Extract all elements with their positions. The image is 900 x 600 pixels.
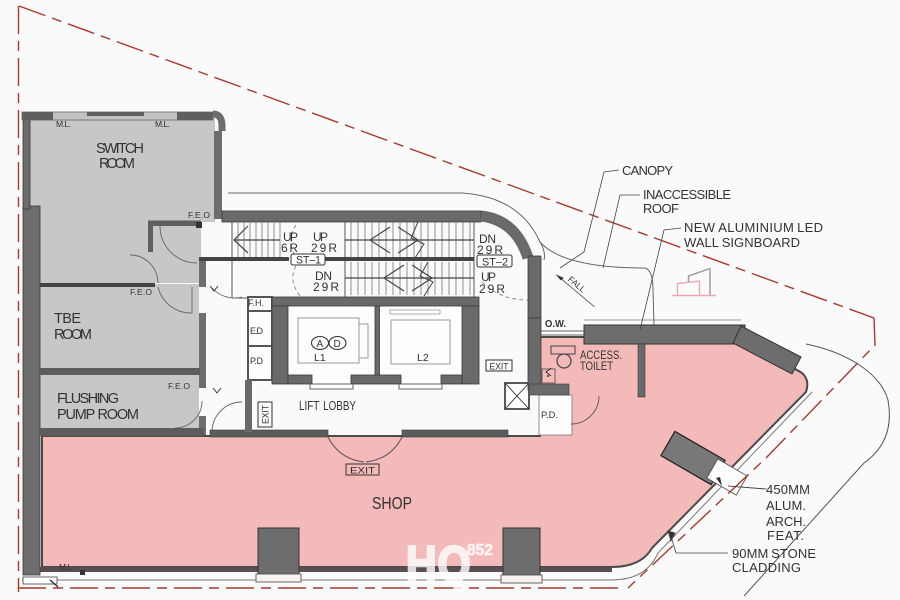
svg-text:F.E.O: F.E.O [188, 210, 210, 220]
svg-text:O.W.: O.W. [545, 318, 566, 330]
svg-text:L1: L1 [314, 352, 326, 364]
svg-text:SHOP: SHOP [372, 493, 412, 513]
svg-text:NEW ALUMINIUM LED: NEW ALUMINIUM LED [684, 220, 823, 235]
svg-text:ST–1: ST–1 [296, 255, 321, 267]
svg-text:P.D: P.D [250, 356, 264, 366]
svg-text:F.H.: F.H. [248, 298, 264, 308]
svg-text:852: 852 [467, 542, 493, 559]
svg-text:TOILET: TOILET [580, 361, 613, 373]
svg-text:F.E.O: F.E.O [168, 381, 190, 391]
svg-text:LIFT LOBBY: LIFT LOBBY [299, 399, 357, 413]
svg-text:INACCESSIBLE: INACCESSIBLE [643, 187, 731, 202]
svg-text:90MM STONE: 90MM STONE [732, 546, 816, 561]
svg-text:6R: 6R [281, 241, 298, 255]
svg-text:A: A [317, 339, 324, 350]
svg-text:FLUSHING: FLUSHING [57, 391, 119, 407]
svg-text:ROOM: ROOM [99, 156, 135, 172]
svg-text:M.L.: M.L. [56, 119, 71, 129]
svg-text:M.L.: M.L. [155, 119, 170, 129]
svg-text:29R: 29R [313, 280, 339, 294]
svg-text:P.D.: P.D. [541, 410, 558, 420]
svg-text:WALL SIGNBOARD: WALL SIGNBOARD [684, 235, 800, 250]
svg-text:EXIT: EXIT [350, 466, 376, 476]
svg-text:EXIT: EXIT [261, 405, 271, 424]
svg-text:29R: 29R [479, 282, 505, 296]
svg-text:ROOM: ROOM [54, 327, 92, 343]
svg-text:SWITCH: SWITCH [96, 141, 144, 157]
svg-text:ST–2: ST–2 [482, 257, 508, 269]
svg-text:450MM: 450MM [766, 482, 810, 497]
svg-text:29R: 29R [311, 241, 337, 255]
svg-text:M.L.: M.L. [59, 562, 74, 572]
svg-text:CLADDING: CLADDING [732, 560, 801, 575]
svg-text:CANOPY: CANOPY [622, 163, 673, 178]
svg-text:HQ: HQ [406, 536, 471, 592]
svg-text:ALUM.: ALUM. [766, 498, 806, 513]
svg-text:L2: L2 [417, 352, 429, 364]
svg-text:ROOF: ROOF [643, 201, 679, 216]
svg-text:EXIT: EXIT [490, 362, 509, 372]
svg-text:PUMP ROOM: PUMP ROOM [57, 407, 139, 423]
svg-text:FEAT.: FEAT. [767, 528, 804, 543]
svg-text:TBE: TBE [54, 311, 81, 327]
svg-text:F.E.O: F.E.O [130, 287, 152, 297]
svg-text:ARCH.: ARCH. [766, 514, 806, 529]
svg-text:D: D [334, 339, 341, 350]
svg-text:E.D: E.D [250, 326, 264, 336]
